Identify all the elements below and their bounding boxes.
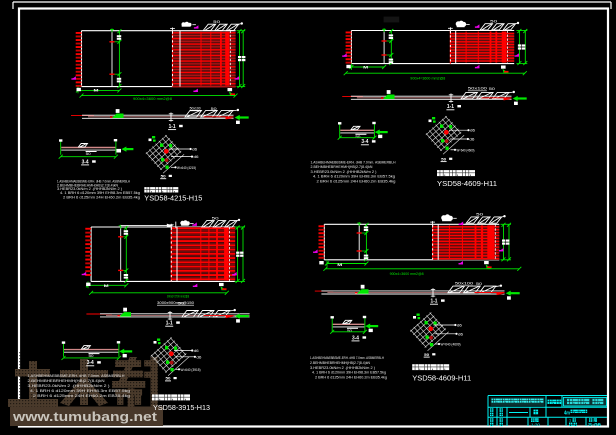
svg-text:W=640 (4215): W=640 (4215) — [177, 166, 196, 170]
svg-text:900x4=3600 mm2@8: 900x4=3600 mm2@8 — [390, 271, 425, 276]
svg-text:2.BEHMBHEBRHEHMH(HB)2.7(8.4)kN: 2.BEHMBHEBRHEHMH(HB)2.7(8.4)kN — [310, 361, 371, 365]
svg-text:2.BEHMBHEBRHEHMH(HB)2.7(8.4)kN: 2.BEHMBHEBRHEHMH(HB)2.7(8.4)kN — [311, 165, 373, 169]
svg-text:50: 50 — [166, 377, 171, 381]
svg-text:1.ASHBEHMAEBBSME-ERH. dHB 7.0m: 1.ASHBEHMAEBBSME-ERH. dHB 7.0mm. ASBMERB… — [310, 356, 385, 360]
svg-text:3-4: 3-4 — [87, 360, 94, 366]
svg-text:50: 50 — [212, 216, 219, 220]
svg-text:50x100: 50x100 — [190, 107, 201, 111]
svg-text:W=640 (3915): W=640 (3915) — [181, 368, 201, 372]
svg-text:50x100: 50x100 — [455, 282, 473, 286]
svg-text:d6: d6 — [194, 349, 199, 353]
svg-text:50: 50 — [476, 213, 483, 217]
svg-text:50x100: 50x100 — [468, 87, 487, 91]
svg-text:YSD58-4215-H15: YSD58-4215-H15 — [144, 193, 202, 202]
svg-text:S-06: S-06 — [588, 422, 602, 427]
svg-text:1-1: 1-1 — [431, 299, 438, 305]
svg-text:www.tumubang.net: www.tumubang.net — [12, 409, 158, 424]
svg-text:4. 1 BRH 6 d120mm 39H EH98.3: 4. 1 BRH 6 d120mm 39H EH98.3m EB57.5kg — [313, 175, 395, 179]
svg-text:1-1: 1-1 — [166, 321, 173, 327]
svg-text:50: 50 — [355, 135, 360, 139]
svg-text:1-1: 1-1 — [447, 104, 454, 110]
svg-text:4. 1 BRH 6 d120mm 39H EH98.3: 4. 1 BRH 6 d120mm 39H EH98.3m EB57.5kg — [312, 371, 386, 375]
svg-text:2 BRH 6 d125mm 24H EH60.2m: 2 BRH 6 d125mm 24H EH60.2m EB35.4kg — [33, 393, 130, 398]
svg-text:3000x900mm@150: 3000x900mm@150 — [157, 301, 194, 305]
svg-text:1-1: 1-1 — [169, 124, 176, 130]
svg-text:YSD58-3915-H13: YSD58-3915-H13 — [153, 403, 210, 412]
svg-text:1.ASHBEHMAEBBSME-ERH. dHB 7.0m: 1.ASHBEHMAEBBSME-ERH. dHB 7.0mm. ASBMERB… — [311, 160, 396, 164]
svg-text:3.HEBR23.0kN/m 2 .(HHHB2kN/m 2: 3.HEBR23.0kN/m 2 .(HHHB2kN/m 2 ) — [311, 170, 377, 174]
svg-text:d6: d6 — [196, 355, 201, 359]
svg-text:50: 50 — [490, 20, 497, 24]
svg-text:d6: d6 — [458, 332, 463, 336]
svg-text:50: 50 — [441, 157, 446, 161]
svg-text:3-4: 3-4 — [352, 335, 359, 341]
svg-text:d6: d6 — [469, 138, 474, 142]
svg-text:1: 1 — [569, 419, 571, 423]
svg-text:d6: d6 — [192, 148, 197, 152]
svg-text:50: 50 — [489, 87, 495, 91]
svg-text:W=640 (4609): W=640 (4609) — [457, 148, 475, 152]
svg-text:2 BRH 6 d125mm 24H EH60.2m: 2 BRH 6 d125mm 24H EH60.2m EB35.4kg — [317, 180, 396, 184]
svg-text:2 BRH 6 d125mm 24H EH60.2m: 2 BRH 6 d125mm 24H EH60.2m EB35.4kg — [63, 195, 140, 199]
svg-text:d6: d6 — [470, 129, 475, 133]
svg-text:900x4=3600 mm2@8: 900x4=3600 mm2@8 — [410, 75, 446, 80]
svg-text:50: 50 — [211, 107, 217, 111]
svg-text:YSD58-4609-H11: YSD58-4609-H11 — [412, 374, 471, 383]
svg-text:50: 50 — [347, 329, 352, 333]
svg-text:3-4: 3-4 — [361, 139, 368, 145]
svg-text:50: 50 — [86, 152, 91, 156]
svg-text:3-4: 3-4 — [82, 159, 89, 165]
svg-text:W=640 (4609): W=640 (4609) — [441, 343, 461, 347]
svg-text:3.HEBR23.0kN/m 2 .(HHHB2kN/m 2: 3.HEBR23.0kN/m 2 .(HHHB2kN/m 2 ) — [310, 366, 375, 370]
svg-text:50: 50 — [424, 353, 429, 357]
svg-text:d6: d6 — [194, 155, 199, 159]
svg-text:50: 50 — [213, 20, 220, 24]
svg-text:YSD58-4609-H11: YSD58-4609-H11 — [437, 179, 497, 188]
svg-text:900x3=2700 mm2@8: 900x3=2700 mm2@8 — [167, 294, 189, 299]
svg-text:d6: d6 — [457, 324, 462, 328]
svg-text:1:20: 1:20 — [531, 423, 540, 427]
svg-text:50: 50 — [161, 174, 166, 178]
svg-text:900x4=3600 mm2@8: 900x4=3600 mm2@8 — [133, 96, 173, 101]
svg-text:50: 50 — [476, 282, 482, 286]
svg-text:4m: 4m — [564, 411, 570, 417]
svg-text:2 BRH 6 d125mm 24H EH60.2m: 2 BRH 6 d125mm 24H EH60.2m EB35.4kg — [315, 375, 387, 379]
